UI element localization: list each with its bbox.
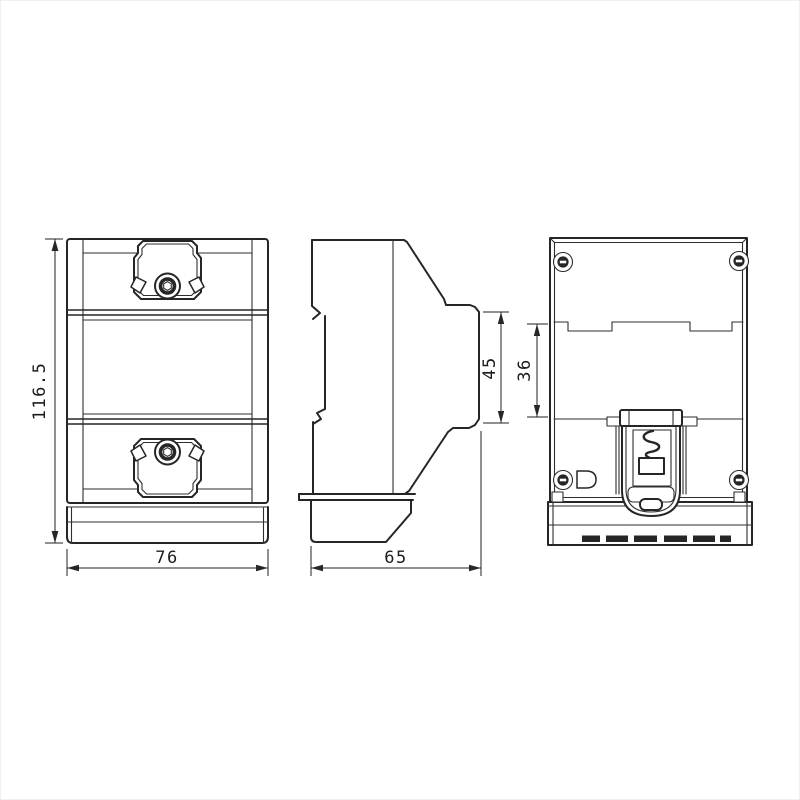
drawing-page: 116.5 76 65 45 — [0, 0, 800, 800]
serration-bar — [582, 536, 600, 543]
clip-pull-handle — [640, 499, 662, 510]
dim-label-side-step: 45 — [480, 356, 500, 379]
rear-screw-bottom-left — [554, 471, 573, 490]
terminal-cover-bottom — [131, 439, 204, 497]
rear-screw-top-right — [730, 252, 749, 271]
technical-drawing-canvas: 116.5 76 65 45 — [0, 0, 800, 800]
clip-guide-rail-right — [683, 426, 686, 494]
serration-bar — [634, 536, 657, 543]
dim-label-rear-mid: 36 — [515, 358, 535, 381]
serration-bar — [720, 536, 731, 543]
front-base-outline — [67, 507, 268, 543]
dimensions: 116.5 76 65 45 — [30, 239, 548, 576]
dim-arrow-right — [469, 565, 481, 571]
dim-rear-mid: 36 — [515, 324, 548, 417]
dim-label-overall-height: 116.5 — [30, 362, 50, 421]
dim-arrow-left — [311, 565, 323, 571]
rear-base-notch-left — [552, 492, 563, 502]
dim-arrow-up — [498, 312, 504, 324]
front-view — [67, 239, 268, 543]
dim-arrow-left — [67, 565, 79, 571]
rear-screw-bottom-right — [730, 471, 749, 490]
rear-view — [548, 238, 752, 545]
side-outline — [312, 240, 479, 493]
dim-arrow-down — [52, 531, 59, 543]
side-left-edge — [312, 240, 325, 494]
serration-bar — [693, 536, 715, 543]
rear-base-notch-right — [734, 492, 745, 502]
dim-overall-depth: 65 — [311, 431, 481, 576]
dim-arrow-up — [52, 239, 59, 251]
clip-latch-block — [639, 458, 664, 474]
rear-base-serrations — [582, 536, 731, 543]
dim-label-overall-width: 76 — [155, 548, 178, 568]
rear-notched-line — [554, 322, 743, 331]
rear-d-pocket — [577, 471, 596, 488]
dim-arrow-right — [256, 565, 268, 571]
dim-label-overall-depth: 65 — [384, 548, 407, 568]
dim-arrow-down — [498, 411, 504, 423]
dim-overall-width: 76 — [67, 548, 268, 576]
serration-bar — [606, 536, 628, 543]
terminal-cover-top — [131, 241, 204, 299]
rear-screw-top-left — [554, 253, 573, 272]
dim-side-step: 45 — [480, 312, 509, 423]
side-view — [299, 240, 479, 542]
clip-guide-rail-left — [616, 426, 619, 494]
dim-arrow-up — [534, 324, 540, 336]
dim-arrow-down — [534, 405, 540, 417]
din-rail-clip — [607, 410, 697, 516]
serration-bar — [664, 536, 687, 543]
side-base-outline — [311, 500, 411, 542]
dim-overall-height: 116.5 — [30, 239, 63, 543]
